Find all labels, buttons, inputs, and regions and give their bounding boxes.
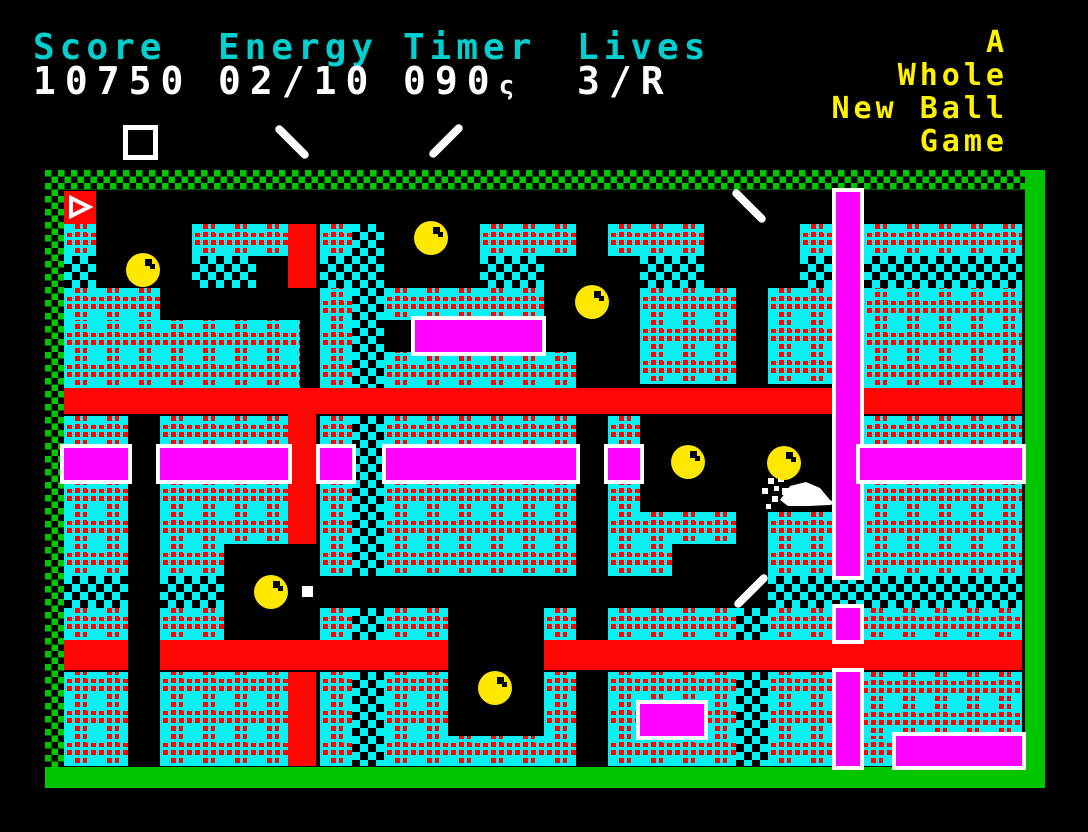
player-ball (760, 474, 840, 514)
wall-plaid (192, 224, 288, 256)
magenta-bar (386, 448, 576, 480)
wall-plaid (768, 608, 836, 640)
wall-plaid (608, 416, 640, 448)
hud-value-timer: 090ς (403, 59, 514, 103)
wall-plaid (384, 608, 448, 640)
red-corridor (288, 224, 316, 288)
wall-plaid (64, 224, 96, 256)
wall-plaid (864, 224, 1022, 256)
wall-plaid (800, 224, 836, 256)
wall-plaid (160, 608, 224, 640)
wall-checker (352, 608, 384, 640)
ball-eye (599, 296, 604, 301)
wall-plaid (384, 288, 544, 320)
wall-plaid (64, 416, 128, 448)
magenta-bar (896, 736, 1022, 766)
wall-plaid (320, 288, 352, 388)
red-corridor (860, 388, 1022, 414)
wall-plaid (768, 512, 836, 576)
magenta-bar (836, 608, 860, 640)
wall-plaid (64, 320, 300, 388)
ball-eye (695, 456, 700, 461)
wall-plaid (224, 480, 288, 544)
magenta-bar (64, 448, 128, 480)
wall-plaid (320, 672, 352, 766)
wall-plaid (320, 224, 352, 256)
maze-border-bottom (45, 767, 1045, 788)
hud-value-energy: 02/10 (218, 59, 377, 103)
title-line: Game (832, 125, 1009, 158)
magenta-bar (608, 448, 640, 480)
red-corridor (544, 640, 1022, 670)
wall-checker (64, 576, 128, 608)
wall-plaid (320, 480, 352, 576)
wall-plaid (64, 288, 160, 320)
wall-checker (352, 416, 384, 576)
wall-checker (640, 256, 704, 288)
wall-checker (480, 256, 544, 288)
red-corridor (288, 414, 316, 544)
wall-plaid (860, 672, 1022, 736)
wall-checker (352, 672, 384, 766)
hud-value-text: 02/10 (218, 59, 377, 103)
magenta-bar (320, 448, 352, 480)
wall-plaid (160, 672, 288, 766)
spinner-icon (428, 123, 465, 160)
spinner-icon (274, 124, 311, 161)
wall-plaid (864, 288, 1022, 388)
hud-value-text: 090 (403, 59, 499, 103)
title-line: New Ball (832, 92, 1009, 125)
spinner-icon (731, 188, 768, 225)
wall-plaid (544, 672, 576, 766)
wall-plaid (768, 288, 836, 384)
hud-value-text: 10750 (33, 59, 192, 103)
ball-icon (575, 285, 609, 319)
wall-plaid (320, 608, 352, 640)
magenta-bar (640, 704, 704, 736)
wall-plaid (768, 672, 836, 766)
wall-plaid (448, 736, 544, 766)
wall-plaid (64, 608, 128, 640)
wall-checker (352, 224, 384, 388)
wall-checker (864, 256, 1022, 288)
wall-plaid (640, 288, 736, 384)
hud-value-lives: 3/R (577, 59, 673, 103)
hud-square-icon (123, 125, 158, 160)
wall-plaid (544, 608, 576, 640)
magenta-bar (415, 320, 542, 352)
ball-icon (126, 253, 160, 287)
wall-plaid (160, 480, 224, 576)
red-corridor (64, 388, 836, 414)
ball-eye (438, 232, 443, 237)
wall-checker (160, 576, 224, 608)
title-line: Whole (832, 59, 1009, 92)
wall-plaid (64, 480, 128, 576)
magenta-bar (836, 672, 860, 766)
wall-plaid (320, 416, 352, 448)
hud-value-unit: ς (499, 71, 515, 101)
ball-icon (478, 671, 512, 705)
maze-border-left (45, 170, 64, 788)
wall-checker (192, 256, 256, 288)
wall-checker (64, 256, 96, 288)
ball-eye (278, 586, 283, 591)
wall-checker (736, 672, 768, 766)
hud-value-score: 10750 (33, 59, 192, 103)
wall-plaid (640, 544, 672, 576)
red-corridor (160, 640, 448, 670)
wall-plaid (608, 608, 736, 640)
game-screen: Score10750Energy02/10Timer090ςLives3/R A… (0, 0, 1088, 832)
wall-plaid (608, 480, 640, 576)
wall-plaid (384, 352, 576, 388)
wall-checker (800, 256, 836, 288)
title-line: A (832, 26, 1009, 59)
white-dot (302, 586, 313, 597)
ball-icon (671, 445, 705, 479)
wall-plaid (384, 672, 448, 766)
wall-plaid (860, 608, 1022, 640)
wall-checker (320, 256, 352, 288)
wall-plaid (160, 416, 288, 448)
game-title: AWholeNew BallGame (832, 26, 1009, 158)
ball-icon (414, 221, 448, 255)
maze-border-right (1025, 170, 1045, 788)
wall-checker (736, 608, 768, 640)
red-corridor (64, 640, 128, 670)
magenta-bar (160, 448, 288, 480)
wall-checker (768, 576, 1022, 608)
start-flag-icon (64, 191, 96, 224)
wall-plaid (384, 416, 576, 448)
wall-plaid (64, 672, 128, 766)
ball-eye (502, 682, 507, 687)
magenta-bar (860, 448, 1022, 480)
wall-plaid (860, 736, 896, 766)
wall-plaid (864, 480, 1022, 576)
ball-icon (767, 446, 801, 480)
spinner-icon (733, 573, 770, 610)
wall-plaid (480, 224, 576, 256)
ball-eye (791, 457, 796, 462)
magenta-bar (836, 192, 860, 576)
wall-plaid (864, 416, 1022, 448)
maze-border-top (45, 170, 1045, 190)
wall-plaid (384, 480, 576, 576)
ball-icon (254, 575, 288, 609)
wall-plaid (640, 512, 736, 544)
hud-value-text: 3/R (577, 59, 673, 103)
ball-eye (150, 264, 155, 269)
wall-plaid (608, 224, 704, 256)
red-corridor (288, 672, 316, 766)
